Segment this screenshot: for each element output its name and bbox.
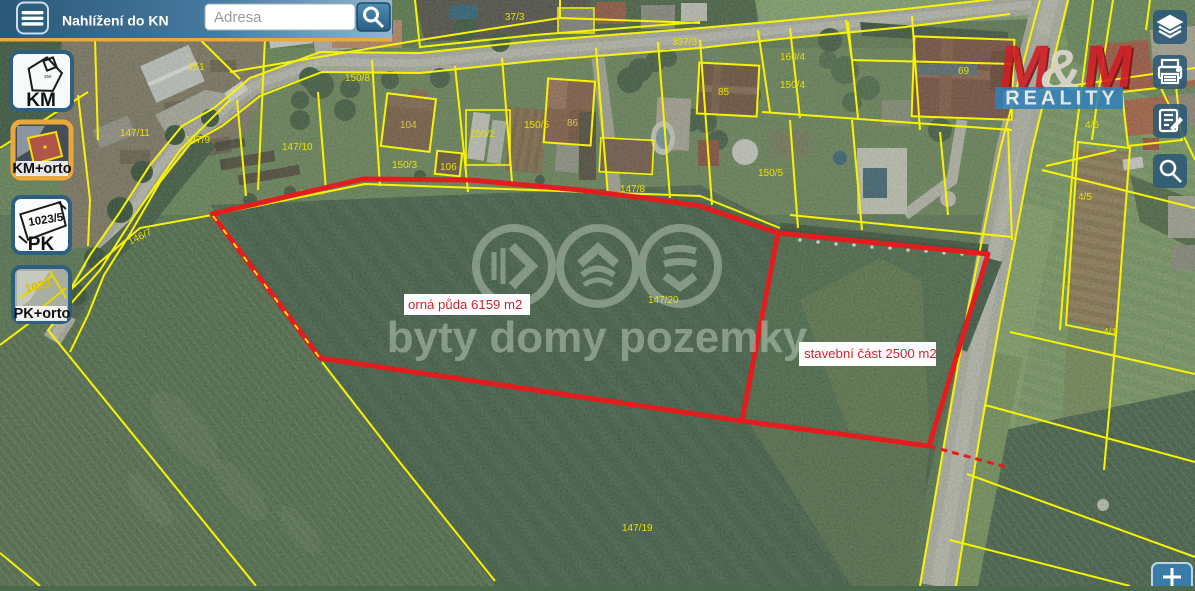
svg-text:Adresa: Adresa <box>214 9 262 26</box>
svg-text:147/9: 147/9 <box>185 135 210 146</box>
svg-text:147/10: 147/10 <box>282 142 313 153</box>
svg-text:147/19: 147/19 <box>622 523 653 534</box>
svg-text:106: 106 <box>440 162 457 173</box>
svg-text:104: 104 <box>400 120 417 131</box>
svg-text:85: 85 <box>718 87 730 98</box>
svg-text:150/5: 150/5 <box>524 120 549 131</box>
svg-text:337/3: 337/3 <box>672 37 697 48</box>
svg-text:PK: PK <box>28 234 55 255</box>
svg-text:PK+orto: PK+orto <box>14 306 71 322</box>
svg-text:160/4: 160/4 <box>780 52 805 63</box>
svg-text:147/11: 147/11 <box>120 128 150 139</box>
svg-text:4/6: 4/6 <box>1085 120 1099 131</box>
svg-text:86: 86 <box>567 118 579 129</box>
svg-text:Nahlížení do KN: Nahlížení do KN <box>62 13 169 29</box>
svg-text:4/5: 4/5 <box>1078 192 1092 203</box>
svg-text:37/3: 37/3 <box>505 12 525 23</box>
svg-text:KM: KM <box>26 90 56 111</box>
svg-text:69: 69 <box>958 66 970 77</box>
svg-text:150/8: 150/8 <box>345 73 370 84</box>
svg-text:150/2: 150/2 <box>470 129 495 140</box>
svg-text:stavební část 2500 m2: stavební část 2500 m2 <box>804 346 937 361</box>
svg-text:150/3: 150/3 <box>392 160 417 171</box>
svg-text:151: 151 <box>188 62 205 73</box>
svg-text:byty domy pozemky: byty domy pozemky <box>387 313 808 362</box>
svg-text:orná půda 6159 m2: orná půda 6159 m2 <box>408 297 522 312</box>
svg-text:150/4: 150/4 <box>780 80 805 91</box>
svg-text:4/1: 4/1 <box>1103 327 1117 338</box>
svg-text:KM+orto: KM+orto <box>12 161 71 177</box>
svg-text:366: 366 <box>44 74 52 79</box>
svg-text:150/5: 150/5 <box>758 168 783 179</box>
svg-text:REALITY: REALITY <box>1005 88 1119 110</box>
